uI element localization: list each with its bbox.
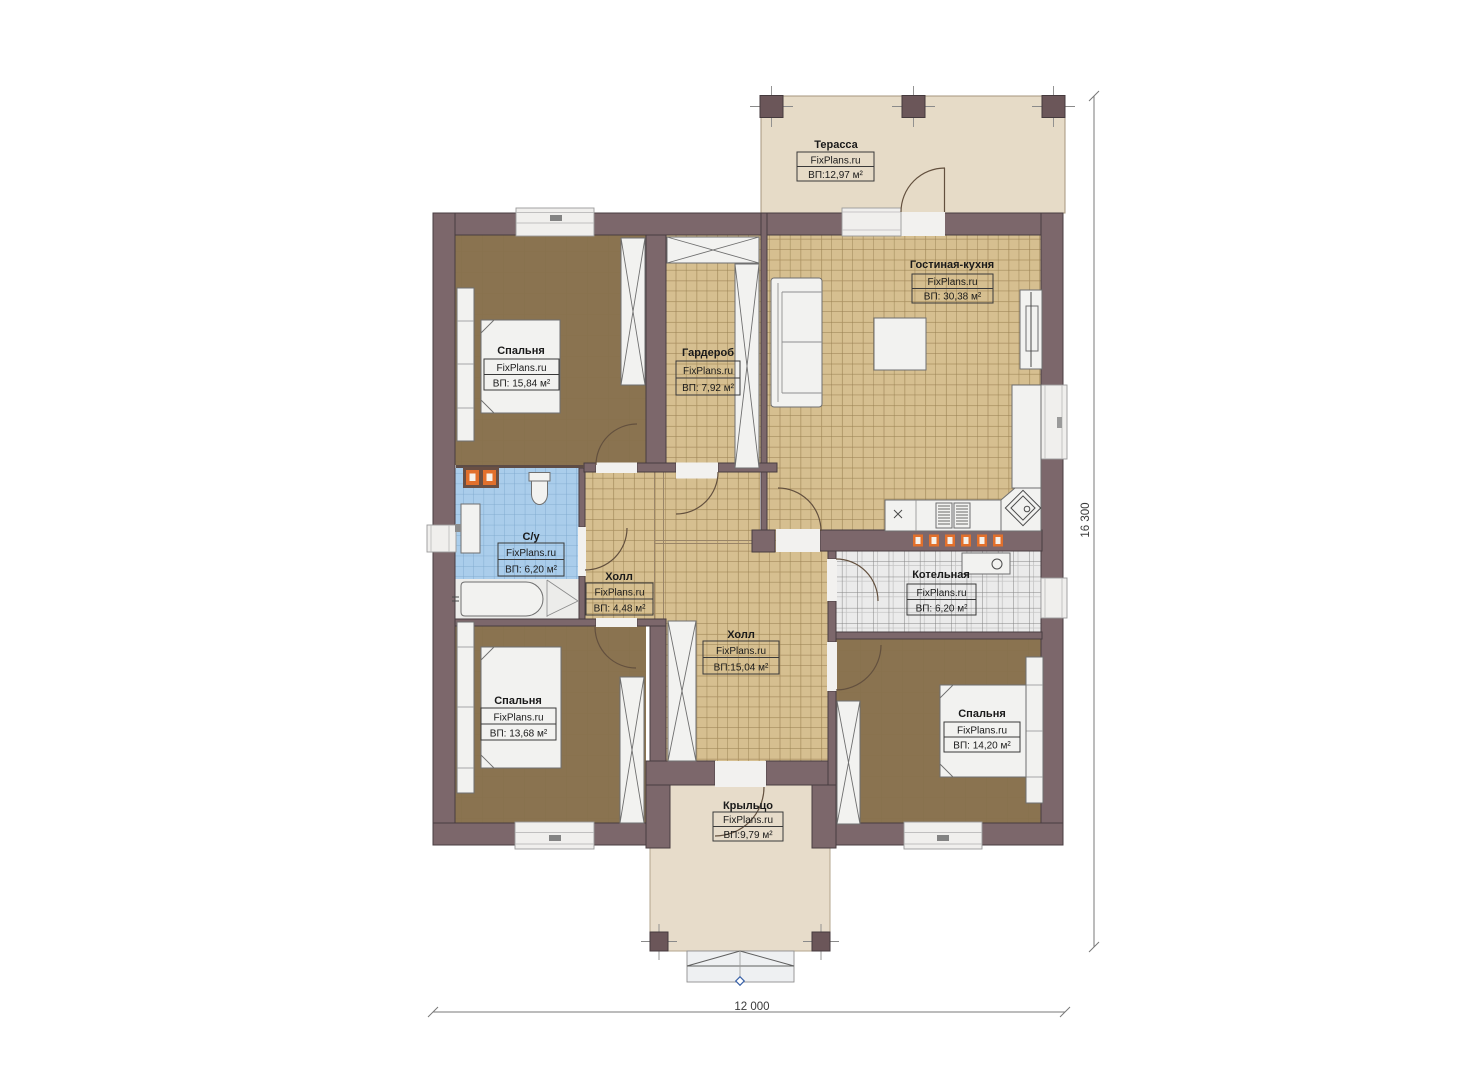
svg-text:ВП: 30,38 м²: ВП: 30,38 м² [924,292,982,303]
svg-text:ВП: 6,20 м²: ВП: 6,20 м² [916,604,969,615]
svg-text:FixPlans.ru: FixPlans.ru [493,713,543,724]
svg-text:Крыльцо: Крыльцо [723,800,773,812]
svg-text:FixPlans.ru: FixPlans.ru [496,363,546,374]
svg-text:16 300: 16 300 [1080,502,1092,537]
svg-text:Спальня: Спальня [497,345,545,357]
svg-text:Терасса: Терасса [814,139,858,151]
svg-text:ВП: 7,92 м²: ВП: 7,92 м² [682,383,735,394]
svg-text:Гардероб: Гардероб [682,347,734,359]
svg-text:Холл: Холл [605,571,633,583]
svg-text:ВП: 15,84 м²: ВП: 15,84 м² [493,379,551,390]
svg-text:FixPlans.ru: FixPlans.ru [683,366,733,377]
svg-text:Гостиная-кухня: Гостиная-кухня [910,259,994,271]
svg-text:ВП:12,97 м²: ВП:12,97 м² [808,170,863,181]
svg-text:FixPlans.ru: FixPlans.ru [810,156,860,167]
svg-text:FixPlans.ru: FixPlans.ru [927,277,977,288]
svg-text:Спальня: Спальня [958,708,1006,720]
svg-text:FixPlans.ru: FixPlans.ru [723,815,773,826]
svg-text:ВП:15,04 м²: ВП:15,04 м² [714,663,769,674]
svg-text:ВП: 13,68 м²: ВП: 13,68 м² [490,729,548,740]
svg-text:12 000: 12 000 [734,1001,769,1013]
svg-text:Спальня: Спальня [494,695,542,707]
svg-text:ВП: 6,20 м²: ВП: 6,20 м² [505,565,558,576]
svg-text:Холл: Холл [727,629,755,641]
svg-text:ВП: 14,20 м²: ВП: 14,20 м² [953,741,1011,752]
svg-text:FixPlans.ru: FixPlans.ru [594,588,644,599]
svg-text:С/у: С/у [522,531,540,543]
svg-text:FixPlans.ru: FixPlans.ru [506,548,556,559]
svg-text:Котельная: Котельная [912,569,970,581]
svg-text:FixPlans.ru: FixPlans.ru [716,646,766,657]
svg-text:FixPlans.ru: FixPlans.ru [916,588,966,599]
svg-text:ВП: 4,48 м²: ВП: 4,48 м² [594,604,647,615]
svg-text:ВП:9,79 м²: ВП:9,79 м² [723,830,773,841]
svg-text:FixPlans.ru: FixPlans.ru [957,726,1007,737]
